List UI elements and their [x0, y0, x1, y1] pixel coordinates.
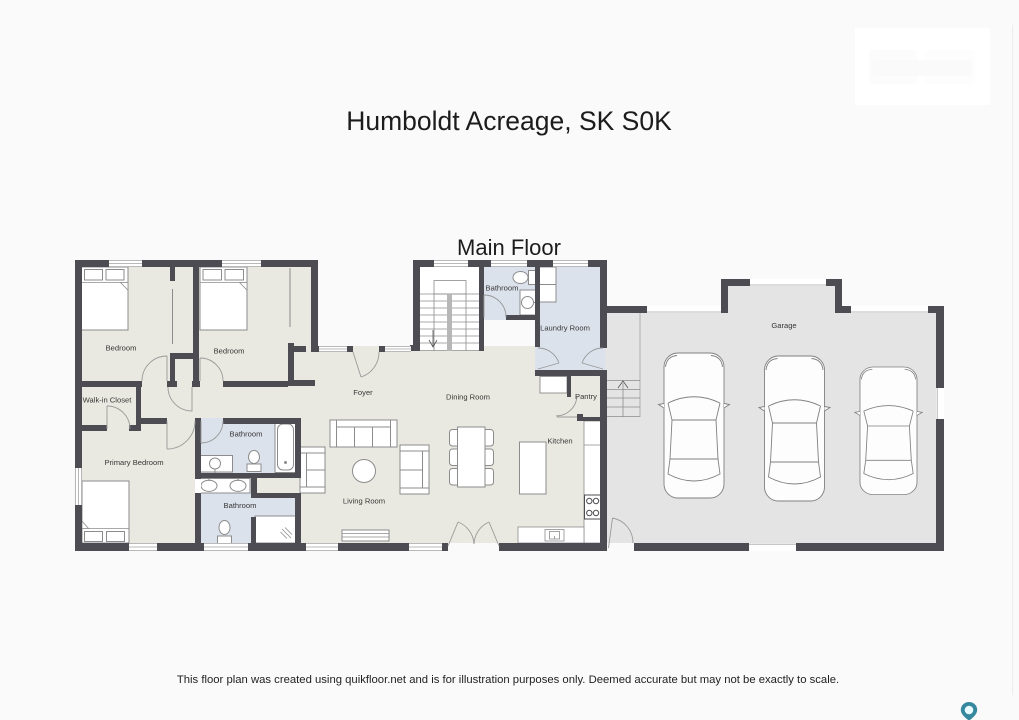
svg-text:Living Room: Living Room [343, 497, 385, 506]
svg-text:Humboldt Acreage, SK S0K: Humboldt Acreage, SK S0K [346, 106, 672, 136]
svg-text:Bathroom: Bathroom [230, 430, 263, 439]
svg-text:Foyer: Foyer [353, 388, 373, 397]
svg-text:Primary Bedroom: Primary Bedroom [104, 458, 163, 467]
svg-text:Pantry: Pantry [575, 392, 597, 401]
svg-text:Bathroom: Bathroom [224, 501, 257, 510]
svg-text:Bedroom: Bedroom [214, 347, 245, 356]
svg-text:Garage: Garage [771, 321, 796, 330]
svg-text:Laundry Room: Laundry Room [540, 324, 590, 333]
svg-text:Main Floor: Main Floor [457, 235, 561, 260]
svg-text:Bedroom: Bedroom [106, 344, 137, 353]
svg-text:Bathroom: Bathroom [486, 284, 519, 293]
svg-text:Dining Room: Dining Room [446, 393, 490, 402]
svg-text:Walk-in Closet: Walk-in Closet [83, 396, 133, 405]
svg-text:Kitchen: Kitchen [547, 437, 572, 446]
svg-text:This floor plan was created us: This floor plan was created using quikfl… [177, 674, 839, 686]
